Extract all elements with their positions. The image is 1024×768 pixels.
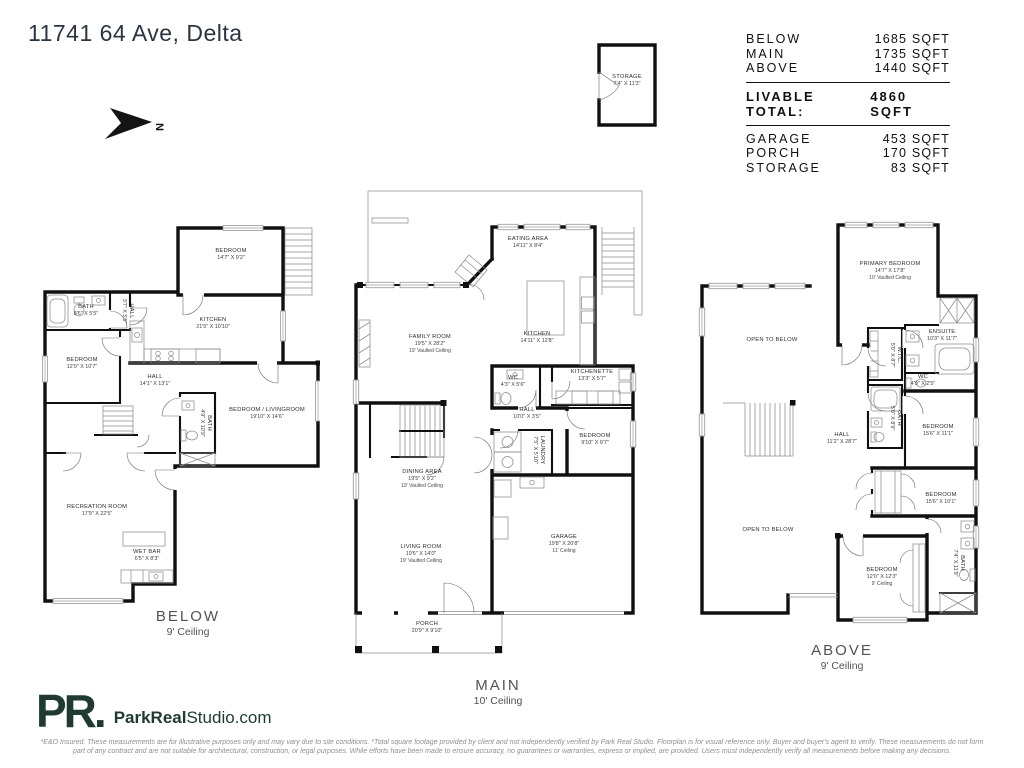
room-label-bath-vertical: BATH 4'9" X 10'9" xyxy=(182,401,212,445)
table-divider xyxy=(746,82,950,83)
page-title: 11741 64 Ave, Delta xyxy=(28,20,243,47)
room-label-family-room: FAMILY ROOM 19'5" X 28'2" 19' Vaulted Ce… xyxy=(390,334,470,355)
room-label-dining-area: DINING AREA 19'5" X 9'2" 19' Vaulted Cei… xyxy=(382,469,462,490)
area-row-total: LIVABLE TOTAL: 4860 SQFT xyxy=(746,89,950,119)
park-real-studio-logo: PR. ParkRealStudio.com xyxy=(36,688,272,734)
logo-pr-icon: PR. xyxy=(36,688,104,734)
room-label-ensuite: ENSUITE 10'3" X 11'7" xyxy=(902,329,982,343)
room-label-porch: PORCH 20'9" X 9'10" xyxy=(387,621,467,635)
room-label-bedroom: BEDROOM 12'0" X 10'7" xyxy=(42,357,122,371)
room-label-living-room: LIVING ROOM 19'6" X 14'0" 19' Vaulted Ce… xyxy=(381,544,461,565)
main-floorplan: EATING AREA 14'11" X 8'4" FAMILY ROOM 19… xyxy=(352,185,672,665)
room-label-hall: HALL 11'2" X 28'7" xyxy=(802,432,882,446)
storage-room-plan: STORAGE 7'4" X 11'3" xyxy=(596,42,658,128)
room-label-hall: HALL 10'0" X 3'5" xyxy=(487,407,567,421)
area-row-storage: STORAGE 83 SQFT xyxy=(746,161,950,176)
floor-label-above: ABOVE 9' Ceiling xyxy=(782,642,902,672)
area-summary-table: BELOW 1685 SQFT MAIN 1735 SQFT ABOVE 144… xyxy=(746,32,950,175)
area-row-main: MAIN 1735 SQFT xyxy=(746,47,950,62)
room-label-primary-bedroom: PRIMARY BEDROOM 14'7" X 17'8" 10' Vaulte… xyxy=(850,261,930,282)
area-row-garage: GARAGE 453 SQFT xyxy=(746,132,950,147)
area-row-below: BELOW 1685 SQFT xyxy=(746,32,950,47)
table-divider xyxy=(746,125,950,126)
room-label-bedroom-livingroom: BEDROOM / LIVINGROOM 19'10" X 14'6" xyxy=(207,407,327,421)
disclaimer-text: *E&O Insured. These measurements are for… xyxy=(6,739,1018,756)
room-label-kitchenette: KITCHENETTE 13'3" X 5'7" xyxy=(552,369,632,383)
room-label-laundry: LAUNDRY 7'5" X 5'10" xyxy=(515,428,545,472)
main-floorplan-drawing xyxy=(352,185,672,665)
room-label-hall-small: HALL 3'7" X 5'5" xyxy=(104,289,134,333)
room-label-open-to-below: OPEN TO BELOW xyxy=(728,527,808,534)
area-row-above: ABOVE 1440 SQFT xyxy=(746,61,950,76)
floor-label-main: MAIN 10' Ceiling xyxy=(438,677,558,707)
north-arrow: N xyxy=(105,108,175,150)
below-floorplan-drawing xyxy=(35,218,320,648)
below-floorplan: BEDROOM 14'7" X 9'2" BATH 8'6" X 5'5" HA… xyxy=(35,218,320,648)
room-label-open-to-below: OPEN TO BELOW xyxy=(732,337,812,344)
room-label-bedroom: BEDROOM 9'10" X 9'7" xyxy=(555,433,635,447)
room-label-garage: GARAGE 19'8" X 20'8" 11' Ceiling xyxy=(524,534,604,555)
room-label-recreation: RECREATION ROOM 17'9" X 22'5" xyxy=(47,504,147,518)
room-label-eating-area: EATING AREA 14'11" X 8'4" xyxy=(488,236,568,250)
room-label-hall: HALL 14'1" X 13'1" xyxy=(115,374,195,388)
room-label-bedroom: BEDROOM 14'7" X 9'2" xyxy=(191,248,271,262)
floorplan-sheet: 11741 64 Ave, Delta N BELOW 1685 SQFT MA… xyxy=(0,0,1024,768)
room-label-kitchen: KITCHEN 21'5" X 10'10" xyxy=(173,317,253,331)
room-label-kitchen: KITCHEN 14'11" X 12'8" xyxy=(497,331,577,345)
logo-wordmark: ParkRealStudio.com xyxy=(114,708,272,728)
room-label-bedroom: BEDROOM 15'6" X 10'1" xyxy=(901,492,981,506)
above-floorplan: PRIMARY BEDROOM 14'7" X 17'8" 10' Vaulte… xyxy=(695,218,985,648)
north-label: N xyxy=(153,123,165,131)
area-row-porch: PORCH 170 SQFT xyxy=(746,146,950,161)
floor-label-below: BELOW 9' Ceiling xyxy=(128,608,248,638)
room-label-wetbar: WET BAR 6'5" X 8'3" xyxy=(117,549,177,563)
room-label-wc: WC 4'3" X 5'6" xyxy=(488,375,538,389)
room-label-wic: W.I.C. 5'0" X 8'7" xyxy=(872,333,902,377)
room-label: STORAGE 7'4" X 11'3" xyxy=(596,74,658,88)
room-label-bedroom: BEDROOM 15'6" X 11'1" xyxy=(898,424,978,438)
room-label-bedroom: BEDROOM 12'0" X 12'3" 9' Ceiling xyxy=(842,567,922,588)
room-label-wc: WC 4'9" X 2'5" xyxy=(898,374,948,388)
room-label-bath-vertical: BATH 7'4" X 11'9" xyxy=(935,541,965,585)
